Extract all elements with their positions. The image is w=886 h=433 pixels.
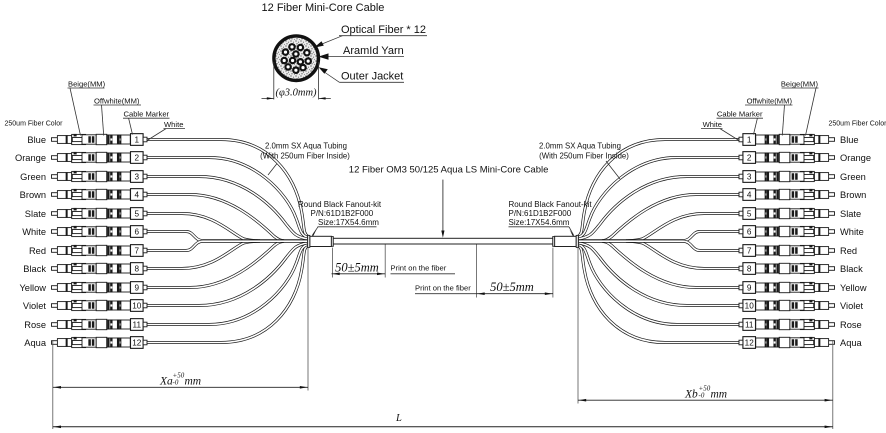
svg-text:Xa: Xa bbox=[159, 376, 173, 388]
svg-text:7: 7 bbox=[747, 246, 752, 255]
svg-text:Cable Marker: Cable Marker bbox=[124, 110, 170, 119]
svg-text:Aqua: Aqua bbox=[24, 338, 47, 348]
svg-text:Green: Green bbox=[840, 172, 866, 182]
svg-text:White: White bbox=[840, 227, 864, 237]
svg-text:Round Black Fanout-kit: Round Black Fanout-kit bbox=[298, 200, 382, 209]
svg-text:Print on the fiber: Print on the fiber bbox=[391, 264, 447, 273]
svg-text:250um Fiber Color: 250um Fiber Color bbox=[5, 121, 64, 128]
svg-text:9: 9 bbox=[135, 283, 140, 292]
svg-text:50±5mm: 50±5mm bbox=[490, 280, 534, 294]
svg-text:5: 5 bbox=[747, 209, 752, 218]
svg-text:1: 1 bbox=[747, 135, 752, 144]
svg-text:Red: Red bbox=[29, 246, 46, 256]
svg-text:AramId Yarn: AramId Yarn bbox=[343, 45, 404, 57]
svg-text:Blue: Blue bbox=[27, 135, 46, 145]
svg-text:Xb: Xb bbox=[684, 388, 698, 400]
svg-text:12: 12 bbox=[132, 338, 142, 347]
svg-text:Offwhite(MM): Offwhite(MM) bbox=[747, 96, 793, 105]
svg-text:2: 2 bbox=[135, 153, 140, 162]
svg-text:2: 2 bbox=[747, 153, 752, 162]
svg-text:-0: -0 bbox=[699, 391, 705, 399]
svg-text:Slate: Slate bbox=[840, 209, 861, 219]
svg-text:Violet: Violet bbox=[23, 301, 47, 311]
svg-text:Violet: Violet bbox=[840, 301, 864, 311]
svg-text:Blue: Blue bbox=[840, 135, 859, 145]
svg-text:11: 11 bbox=[745, 320, 754, 329]
svg-text:10: 10 bbox=[132, 301, 142, 310]
svg-text:(With 250um Fiber Inside): (With 250um Fiber Inside) bbox=[260, 151, 350, 160]
svg-text:4: 4 bbox=[747, 190, 752, 199]
svg-text:White: White bbox=[22, 227, 46, 237]
svg-text:Brown: Brown bbox=[20, 190, 46, 200]
svg-text:2.0mm SX Aqua Tubing: 2.0mm SX Aqua Tubing bbox=[539, 142, 621, 151]
svg-text:P/N:61D1B2F000: P/N:61D1B2F000 bbox=[509, 209, 572, 218]
svg-text:mm: mm bbox=[711, 388, 728, 400]
svg-text:12 Fiber Mini-Core Cable: 12 Fiber Mini-Core Cable bbox=[262, 2, 385, 14]
svg-text:Size:17X54.6mm: Size:17X54.6mm bbox=[318, 218, 379, 227]
svg-text:3: 3 bbox=[747, 172, 752, 181]
svg-text:Orange: Orange bbox=[15, 153, 46, 163]
svg-text:6: 6 bbox=[747, 227, 752, 236]
svg-text:Rose: Rose bbox=[24, 320, 46, 330]
svg-text:White: White bbox=[164, 120, 183, 129]
svg-text:12 Fiber OM3 50/125 Aqua LS Mi: 12 Fiber OM3 50/125 Aqua LS Mini-Core Ca… bbox=[349, 164, 549, 175]
svg-text:Rose: Rose bbox=[840, 320, 862, 330]
svg-text:Slate: Slate bbox=[25, 209, 46, 219]
svg-text:Red: Red bbox=[840, 246, 857, 256]
svg-text:L: L bbox=[395, 413, 402, 424]
svg-text:Brown: Brown bbox=[840, 190, 866, 200]
svg-text:Size:17X54.6mm: Size:17X54.6mm bbox=[509, 218, 570, 227]
svg-text:Yellow: Yellow bbox=[19, 283, 46, 293]
svg-text:8: 8 bbox=[135, 264, 140, 273]
svg-text:Outer Jacket: Outer Jacket bbox=[341, 71, 403, 83]
svg-text:Cable Marker: Cable Marker bbox=[717, 110, 763, 119]
svg-text:250um Fiber Color: 250um Fiber Color bbox=[829, 121, 886, 128]
svg-text:Beige(MM): Beige(MM) bbox=[68, 79, 106, 88]
svg-text:Yellow: Yellow bbox=[840, 283, 867, 293]
svg-text:50±5mm: 50±5mm bbox=[335, 260, 379, 274]
svg-text:Round Black Fanout-kit: Round Black Fanout-kit bbox=[509, 200, 593, 209]
svg-text:Optical Fiber * 12: Optical Fiber * 12 bbox=[341, 24, 426, 36]
svg-text:3: 3 bbox=[135, 172, 140, 181]
svg-text:4: 4 bbox=[135, 190, 140, 199]
svg-text:White: White bbox=[703, 120, 722, 129]
svg-text:2.0mm SX Aqua Tubing: 2.0mm SX Aqua Tubing bbox=[265, 142, 347, 151]
svg-text:-0: -0 bbox=[173, 379, 179, 387]
svg-text:Beige(MM): Beige(MM) bbox=[781, 79, 819, 88]
svg-text:9: 9 bbox=[747, 283, 752, 292]
svg-text:+50: +50 bbox=[699, 384, 711, 392]
svg-text:7: 7 bbox=[135, 246, 140, 255]
svg-text:P/N:61D1B2F000: P/N:61D1B2F000 bbox=[311, 209, 374, 218]
svg-text:Black: Black bbox=[23, 264, 46, 274]
svg-text:(With 250um Fiber Inside): (With 250um Fiber Inside) bbox=[539, 151, 629, 160]
svg-text:11: 11 bbox=[133, 320, 142, 329]
svg-text:Offwhite(MM): Offwhite(MM) bbox=[94, 96, 140, 105]
svg-text:(φ3.0mm): (φ3.0mm) bbox=[275, 88, 317, 99]
svg-text:8: 8 bbox=[747, 264, 752, 273]
svg-text:Black: Black bbox=[840, 264, 863, 274]
svg-text:mm: mm bbox=[185, 376, 202, 388]
svg-text:1: 1 bbox=[135, 135, 140, 144]
svg-text:Orange: Orange bbox=[840, 153, 871, 163]
svg-text:12: 12 bbox=[745, 338, 755, 347]
svg-text:Green: Green bbox=[20, 172, 46, 182]
svg-text:6: 6 bbox=[135, 227, 140, 236]
svg-text:+50: +50 bbox=[173, 372, 185, 380]
svg-text:10: 10 bbox=[745, 301, 755, 310]
svg-text:Print on the fiber: Print on the fiber bbox=[415, 284, 471, 293]
svg-text:5: 5 bbox=[135, 209, 140, 218]
svg-text:Aqua: Aqua bbox=[840, 338, 863, 348]
